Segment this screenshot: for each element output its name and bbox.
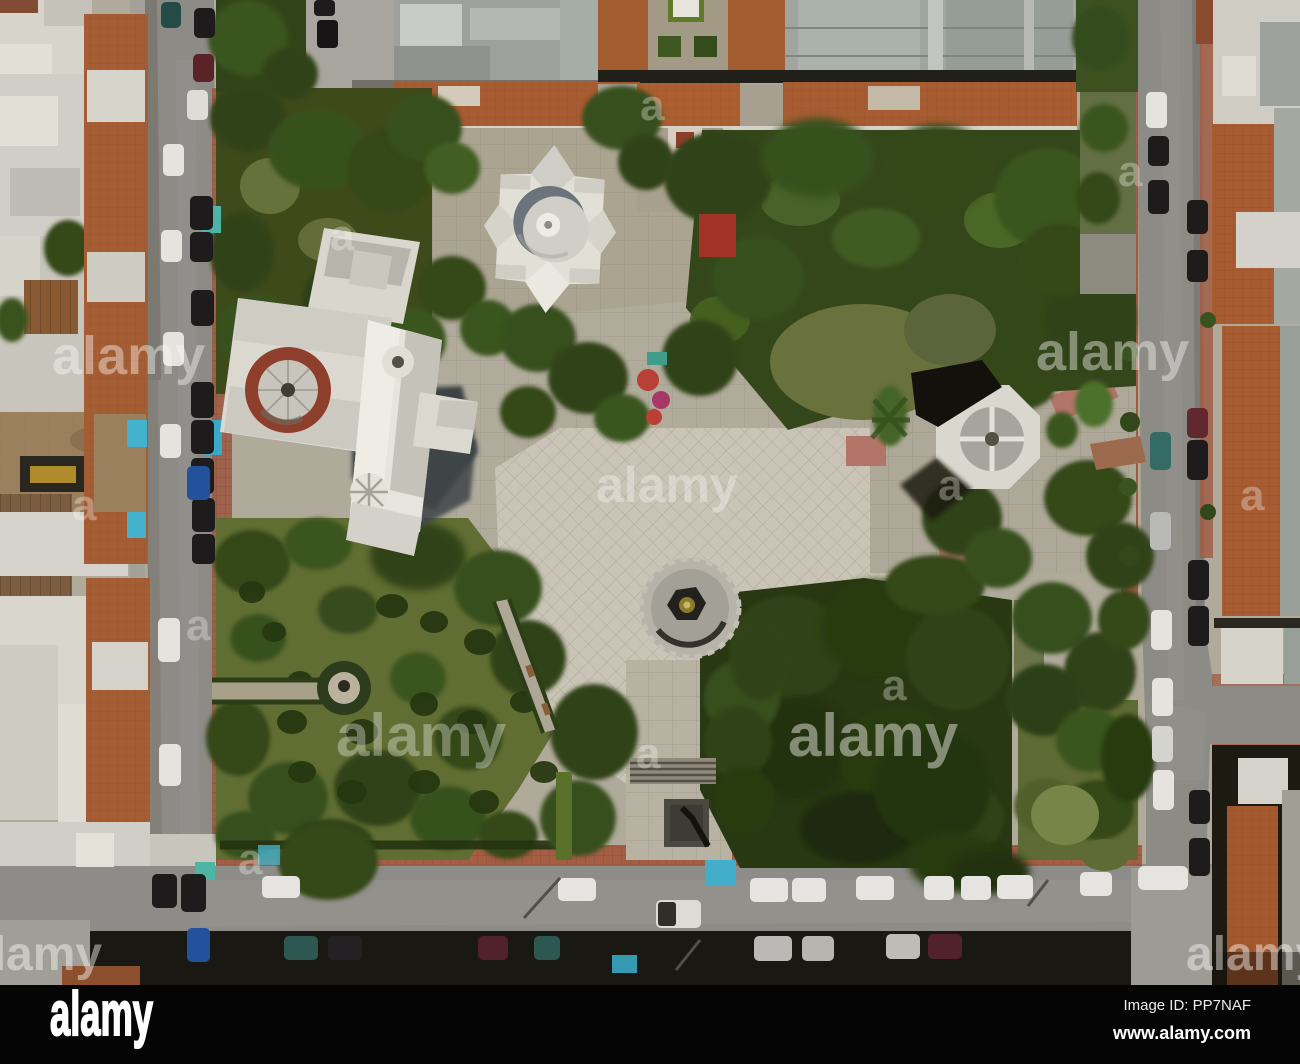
svg-text:www.alamy.com: www.alamy.com	[1112, 1023, 1251, 1043]
svg-text:Image ID: PP7NAF: Image ID: PP7NAF	[1123, 997, 1251, 1014]
svg-text:alamy: alamy	[50, 980, 153, 1049]
